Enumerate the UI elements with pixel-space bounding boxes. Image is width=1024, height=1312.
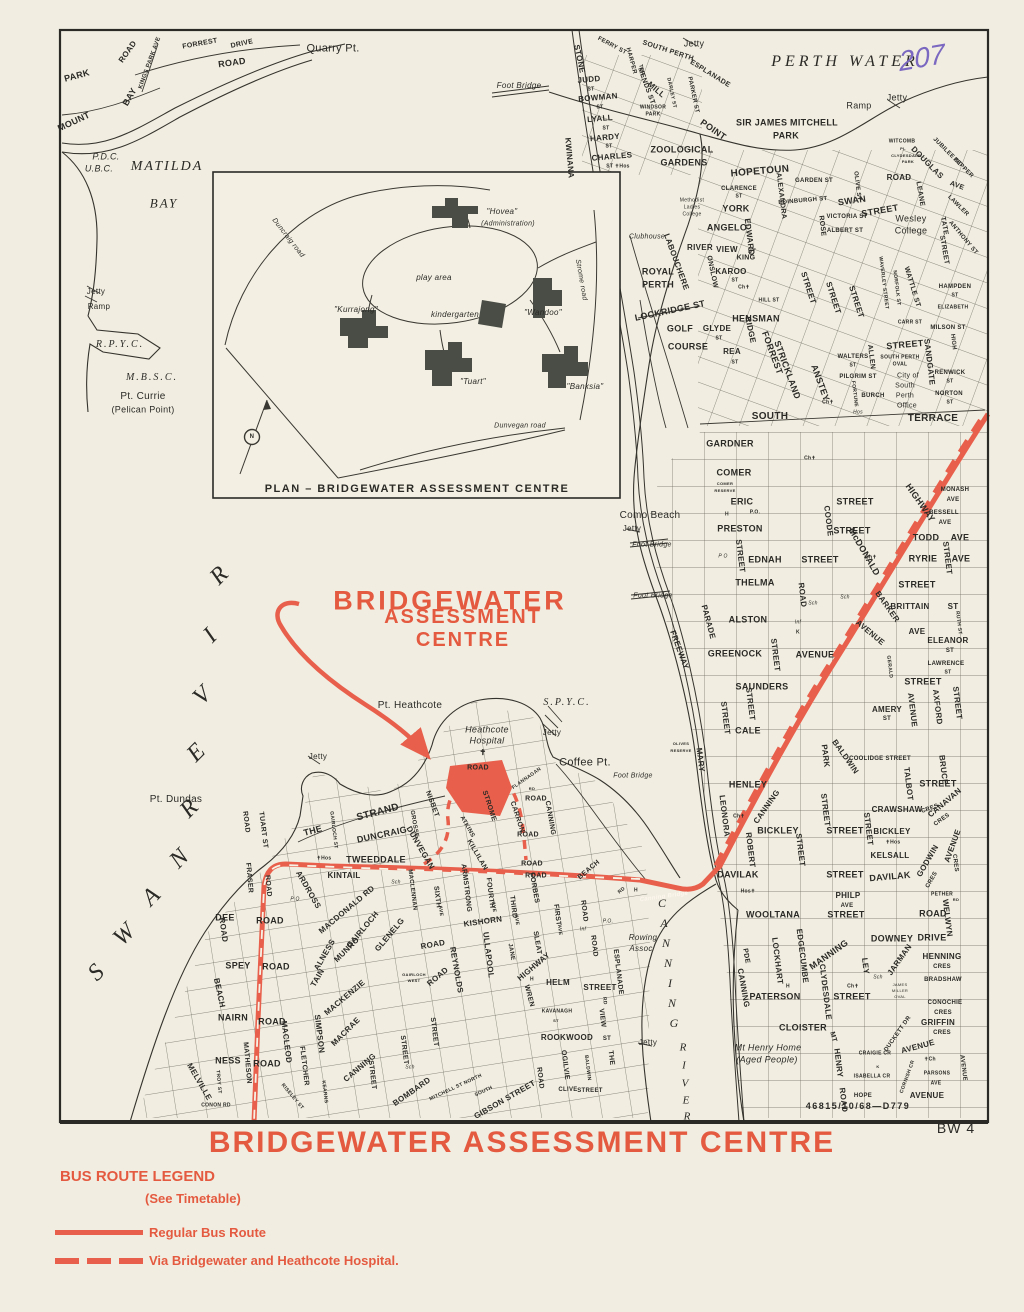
map-label: Inf	[580, 928, 586, 933]
map-label: ROAD	[258, 1018, 286, 1027]
map-label: NORTON	[935, 391, 963, 397]
map-label: WOOLTANA	[746, 911, 800, 920]
map-label: PARK	[773, 132, 799, 141]
map-label: AVE	[513, 914, 519, 925]
annotation-line2: ASSESSMENT CENTRE	[384, 606, 542, 652]
map-label: ST	[945, 671, 952, 676]
map-label: ANGELO	[707, 224, 747, 233]
map-label: REA	[723, 348, 741, 356]
map-label: WALTERS	[838, 354, 869, 360]
map-label: GARDEN ST	[795, 178, 833, 184]
map-label: ✝Hos	[886, 841, 901, 846]
map-label: Jetty	[623, 525, 641, 533]
map-label: Pt. Heathcote	[378, 701, 443, 711]
map-label: ✝Hos	[317, 857, 332, 862]
map-label: Como Beach	[620, 511, 681, 521]
map-label: ST	[883, 716, 891, 722]
map-label: "Tuart"	[460, 378, 486, 386]
footer-title: BRIDGEWATER ASSESSMENT CENTRE	[209, 1126, 835, 1160]
map-label: OVAL	[893, 363, 908, 368]
map-label: DAVILAK	[717, 871, 758, 880]
map-label: AVE	[841, 903, 854, 909]
map-label: PARK	[820, 744, 831, 768]
map-label: City of	[897, 373, 919, 380]
map-label: ST	[947, 380, 954, 385]
map-label: Dunvegan road	[494, 423, 546, 430]
map-label: GAIRLOCH	[402, 973, 426, 977]
map-label: ROAD	[797, 582, 808, 608]
map-label: ROAD	[887, 174, 912, 182]
map-label: Ch✝	[822, 401, 834, 406]
map-label: ✝	[479, 749, 486, 757]
map-label: R	[680, 1043, 689, 1054]
map-label: RD	[953, 898, 959, 902]
map-label: STREET	[826, 871, 863, 880]
map-label: V	[682, 1079, 691, 1090]
map-label: ST	[606, 145, 613, 150]
map-label: KING	[737, 255, 756, 262]
map-label: Ch✝	[738, 286, 750, 291]
map-label: Jetty	[543, 729, 561, 737]
map-label: PARK	[646, 113, 661, 118]
map-label: South	[895, 383, 915, 390]
map-label: Perth	[896, 393, 914, 400]
map-label: PETHER	[931, 893, 953, 898]
map-label: S.P.Y.C.	[543, 698, 590, 708]
map-label: Pt. Dundas	[150, 795, 202, 805]
map-label: HOPE	[854, 1093, 872, 1099]
map-label: N	[668, 997, 678, 1009]
map-label: CRES	[934, 1010, 952, 1016]
legend-heading: BUS ROUTE LEGEND	[60, 1168, 215, 1185]
map-label: ST	[553, 1019, 559, 1023]
map-label: U.B.C.	[85, 165, 113, 174]
map-label: E	[683, 1096, 692, 1107]
map-label: ERIC	[731, 498, 754, 507]
map-label: ELIZABETH	[938, 306, 969, 311]
map-label: Foot Bridge	[632, 542, 672, 549]
map-label: BICKLEY	[873, 828, 910, 836]
map-label: YORK	[722, 205, 749, 214]
map-label: K	[876, 1065, 879, 1069]
map-label: Ramp	[846, 102, 871, 111]
map-label: KINTAIL	[327, 872, 360, 880]
legend-subheading: (See Timetable)	[145, 1191, 241, 1206]
map-label: PERTH WATER	[771, 54, 919, 70]
map-label: PERTH	[642, 281, 674, 290]
map-label: Hos	[853, 411, 863, 416]
map-label: KAROO	[715, 268, 746, 276]
map-label: Ch✝	[847, 985, 859, 990]
map-label: (Administration)	[481, 221, 535, 228]
map-label: STREET	[836, 498, 873, 507]
map-label: SPEY	[225, 962, 250, 971]
inset-caption: PLAN – BRIDGEWATER ASSESSMENT CENTRE	[265, 483, 570, 495]
map-label: PARK	[902, 160, 914, 164]
map-label: WEST	[408, 979, 421, 983]
map-label: H	[530, 978, 534, 983]
map-label: RD	[529, 787, 535, 791]
map-label: RESERVE	[670, 749, 691, 753]
map-label: ROAD	[521, 861, 543, 868]
map-label: R.P.Y.C.	[96, 340, 144, 350]
dashed-route-line-icon	[55, 1258, 143, 1264]
map-label: CONON RD	[201, 1104, 231, 1109]
map-label: HENNING	[923, 953, 962, 961]
map-label: AVE	[931, 1082, 942, 1087]
map-label: Jetty	[309, 753, 327, 761]
map-label: "Hovea"	[487, 208, 518, 216]
map-label: CRAIGIE CR	[859, 1052, 891, 1057]
map-label: PARSONS	[924, 1072, 950, 1077]
map-label: VIEW	[716, 246, 738, 254]
map-label: CRES	[933, 964, 951, 970]
map-label: COMER	[717, 482, 733, 486]
map-label: P.O.	[603, 920, 614, 925]
map-label: Sch	[873, 976, 883, 981]
map-label: ST	[947, 401, 954, 406]
map-label: AVENUE	[910, 1092, 945, 1100]
map-label: RENWICK	[935, 370, 966, 376]
map-label: AVENUE	[796, 651, 835, 660]
map-label: N	[662, 937, 672, 949]
legend-item-label: Via Bridgewater and Heathcote Hospital.	[149, 1253, 399, 1268]
map-label: COMER	[717, 469, 752, 478]
map-label: Ch✝	[865, 556, 877, 561]
map-label: ST	[603, 127, 610, 132]
map-label: Sch	[391, 881, 401, 886]
print-code: 46815/10/68—D779	[806, 1101, 911, 1111]
map-label: ROAD	[256, 917, 284, 926]
map-label: MILLER	[892, 989, 908, 993]
map-label: "Wandoo"	[524, 309, 562, 317]
map-label: TODD	[913, 534, 940, 543]
legend-item-label: Regular Bus Route	[149, 1225, 266, 1240]
map-label: Jetty	[684, 40, 705, 49]
map-label: ST	[736, 195, 743, 200]
map-label: TWEEDDALE	[346, 856, 406, 865]
map-label: WITCOMB	[889, 140, 916, 145]
map-label: ISABELLA CR	[854, 1075, 891, 1080]
map-label: BRITTAIN	[890, 603, 929, 611]
map-label: Assoc	[629, 945, 652, 953]
map-label: ST	[952, 294, 959, 299]
map-label: GRIFFIN	[921, 1019, 955, 1027]
map-label: STREET	[919, 780, 956, 789]
map-label: P O	[718, 555, 727, 560]
map-label: ROOKWOOD	[541, 1034, 593, 1042]
map-label: "Banksia"	[567, 383, 604, 391]
map-label: (Pelican Point)	[111, 406, 174, 415]
map-label: Hos✝	[741, 890, 756, 895]
map-label: CONOCHIE	[928, 1000, 963, 1006]
map-label: GARDENS	[660, 159, 707, 168]
map-label: Foot Bridge	[497, 82, 542, 90]
map-label: Sch	[405, 1066, 415, 1071]
map-label: H	[634, 889, 638, 894]
map-label: ST	[716, 337, 723, 342]
map-label: ALBERT ST	[827, 228, 863, 234]
map-label: ROAD	[253, 1060, 281, 1069]
map-label: COOLIDGE STREET	[849, 756, 911, 762]
map-label: SIR JAMES MITCHELL	[736, 119, 838, 128]
map-label: PHILP	[835, 892, 860, 900]
map-label: BAY	[150, 197, 178, 210]
map-label: AVE	[947, 497, 960, 503]
map-label: AVE	[490, 901, 496, 912]
legend-item-regular: Regular Bus Route	[55, 1225, 266, 1240]
map-label: EDNAH	[748, 556, 782, 565]
map-label: GLYDE	[703, 325, 731, 333]
map-label: HILL ST	[759, 299, 780, 304]
map-label: HAMPDEN	[939, 284, 971, 290]
map-label: COURSE	[668, 343, 708, 352]
map-label: JAMES	[893, 983, 908, 987]
map-label: ROAD	[517, 832, 539, 839]
map-label: K	[796, 631, 800, 636]
map-label: Ch✝	[733, 815, 745, 820]
map-label: Methodist	[680, 199, 704, 204]
map-label: VICTORIA ST	[827, 214, 868, 220]
map-label: OVAL	[894, 995, 906, 999]
map-label: A	[660, 917, 669, 929]
map-label: CARR ST	[898, 321, 922, 326]
map-label: ROYAL	[642, 268, 674, 277]
map-label: LAWRENCE	[928, 661, 965, 667]
map-label: Ramp	[88, 303, 111, 311]
map-label: Foot Bridge	[613, 773, 653, 780]
map-label: CALE	[735, 727, 761, 736]
map-label: Heathcote	[465, 726, 509, 735]
map-label: R	[684, 1112, 693, 1123]
map-label: RD	[601, 997, 607, 1005]
map-label: College	[682, 213, 701, 218]
map-label: NAIRN	[218, 1014, 248, 1023]
map-label: HENSMAN	[732, 315, 780, 324]
map-label: ELEANOR	[927, 637, 968, 645]
map-page: PARKROADKINGS PARK AVEFORRESTDRIVEROADQu…	[0, 0, 1024, 1312]
map-label: Coffee Pt.	[559, 758, 611, 769]
map-label: College	[895, 227, 928, 236]
map-label: Rowing	[629, 934, 657, 942]
map-label: PATERSON	[749, 993, 800, 1002]
map-label: BRADSHAW	[924, 977, 962, 983]
map-label: ST ✝Hos	[606, 165, 630, 170]
map-label: N	[250, 434, 255, 440]
map-label: Quarry Pt.	[306, 44, 359, 55]
map-label: CRES	[933, 1030, 951, 1036]
map-label: ALSTON	[729, 616, 768, 625]
map-label: I	[668, 977, 674, 989]
map-label: Mt Henry Home	[735, 1044, 802, 1053]
map-label: AMERY	[872, 706, 902, 714]
map-label: M.B.S.C.	[126, 373, 178, 383]
map-label: P O	[290, 898, 299, 903]
map-label: RIVER	[687, 244, 713, 252]
map-label: Jetty	[639, 1039, 657, 1047]
map-label: AVE	[909, 628, 926, 636]
map-label: SOUTH PERTH	[880, 356, 919, 361]
map-label: (Aged People)	[736, 1056, 797, 1065]
map-label: TROY ST	[214, 1070, 221, 1094]
map-label: ROAD	[525, 873, 547, 880]
map-label: I	[682, 1061, 688, 1072]
map-label: ST	[603, 1036, 611, 1042]
map-label: STREET	[904, 678, 941, 687]
map-label: P.O.	[750, 511, 761, 516]
map-label: play area	[416, 274, 452, 282]
map-label: G	[670, 1017, 681, 1029]
map-label: ST	[850, 364, 857, 369]
map-label: ROAD	[467, 765, 489, 772]
map-label: Sch	[808, 602, 818, 607]
map-label: STREET	[577, 1088, 602, 1094]
map-label: ROAD	[262, 963, 290, 972]
map-label: THELMA	[735, 579, 774, 588]
map-label: kindergarten	[431, 311, 479, 319]
map-label: ✝Ch	[924, 1058, 936, 1063]
map-label: Jetty	[887, 94, 908, 103]
map-label: GOLF	[667, 325, 693, 334]
map-label: MONASH	[941, 487, 969, 493]
map-label: ST	[597, 106, 604, 111]
map-label: Sch	[840, 596, 850, 601]
map-label: KAVANAGH	[542, 1010, 573, 1015]
map-label: ST	[948, 603, 959, 611]
map-label: CRAWSHAW	[872, 806, 923, 814]
map-label: DRIVE	[917, 934, 946, 943]
map-label: Ladies	[684, 206, 701, 211]
map-label: STREET	[826, 827, 863, 836]
map-label: CLIVE	[558, 1087, 577, 1093]
map-label: STREET	[801, 556, 838, 565]
map-label: Inf	[795, 621, 801, 626]
map-label: BURCH	[861, 393, 884, 399]
map-label: RYRIE	[909, 555, 938, 564]
map-label: AVE	[939, 520, 952, 526]
map-label: PL	[900, 147, 906, 151]
map-label: AVE	[556, 924, 562, 935]
map-label: TERRACE	[908, 414, 958, 424]
map-label: Ch✝	[804, 457, 816, 462]
map-label: MILSON ST	[930, 325, 965, 331]
map-label: MATILDA	[131, 160, 204, 174]
map-label: OLIVES	[673, 742, 689, 746]
map-label: STREET	[583, 984, 616, 992]
map-label: Clubhouse	[629, 234, 665, 241]
map-label: P.D.C.	[92, 153, 119, 162]
map-label: MARY	[695, 747, 706, 772]
map-label: WINDSOR	[640, 106, 666, 111]
page-code: BW 4	[937, 1120, 975, 1136]
map-label: AVE	[951, 534, 970, 543]
map-label: "Kurrajong"	[334, 306, 378, 314]
map-label: BICKLEY	[757, 827, 799, 836]
solid-route-line-icon	[55, 1230, 143, 1235]
legend-item-via: Via Bridgewater and Heathcote Hospital.	[55, 1253, 399, 1268]
map-label: SOUTH	[752, 412, 789, 422]
map-label: AVE	[952, 555, 971, 564]
map-label: KELSALL	[871, 852, 910, 860]
map-label: STREET	[898, 581, 935, 590]
map-label: H	[725, 513, 729, 518]
map-label: ST	[732, 279, 739, 284]
map-label: STREET	[827, 911, 864, 920]
map-label: Office	[897, 403, 917, 410]
map-label: Jetty	[87, 288, 105, 296]
map-label: N	[664, 957, 674, 969]
map-label: PILGRIM ST	[839, 374, 876, 380]
map-label: GARDNER	[706, 440, 754, 449]
map-label: RESERVE	[714, 489, 735, 493]
map-label: ST	[732, 361, 739, 366]
map-label: ST	[588, 88, 595, 93]
map-label: NESS	[215, 1057, 241, 1066]
map-label: Hospital	[470, 737, 505, 746]
map-label: HENLEY	[729, 781, 767, 790]
map-label: ZOOLOGICAL	[651, 146, 714, 155]
map-label: GREENOCK	[708, 650, 762, 659]
map-label: Pt. Currie	[120, 392, 165, 402]
map-label: ST	[946, 648, 954, 654]
map-label: STREET	[833, 993, 870, 1002]
map-label: HELM	[546, 979, 570, 987]
map-label: BESSELL	[929, 510, 959, 516]
map-label: H	[786, 985, 790, 990]
map-label: Wesley	[895, 215, 926, 224]
map-label: AVE	[437, 905, 443, 916]
map-label: PRESTON	[717, 525, 762, 534]
map-label: CLOISTER	[779, 1024, 827, 1033]
map-label: Foot Bridge	[633, 593, 673, 600]
map-label: CLARENCE	[721, 186, 757, 192]
map-label: LEY	[860, 957, 870, 974]
